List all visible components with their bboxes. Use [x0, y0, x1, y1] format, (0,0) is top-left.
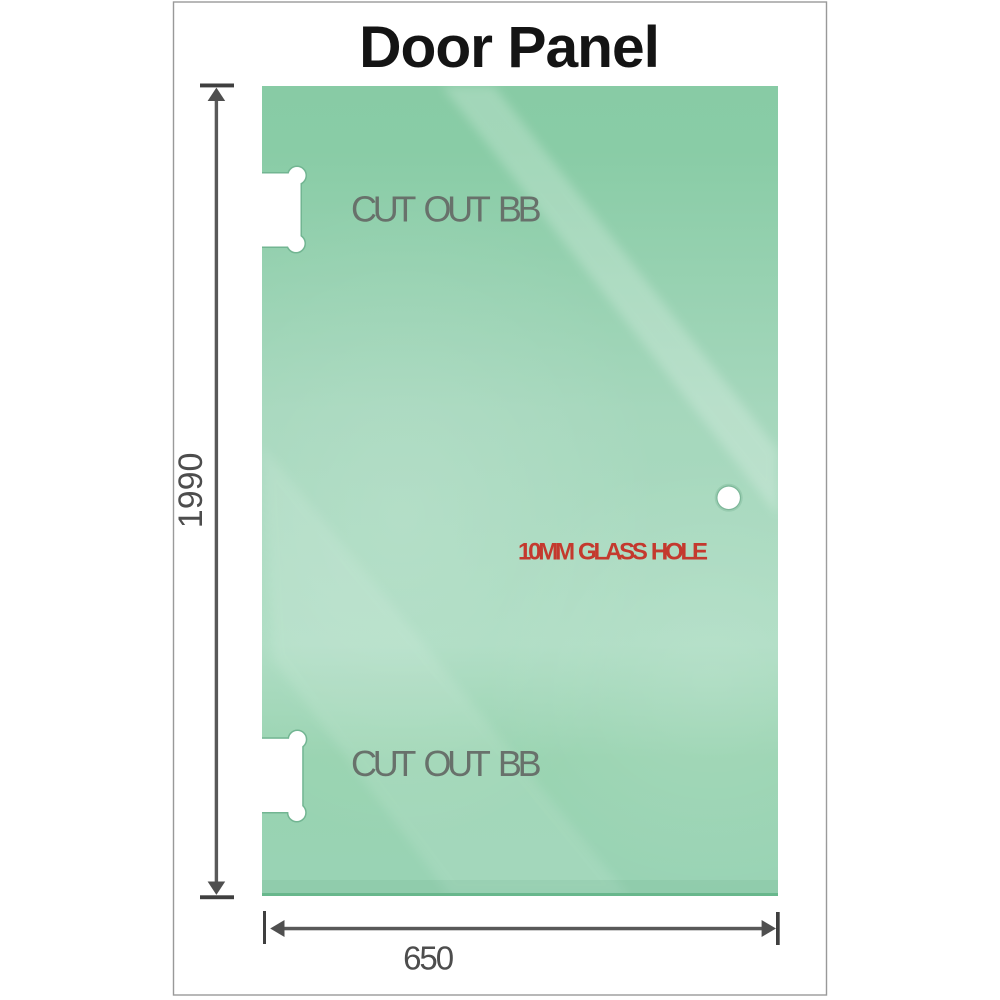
svg-text:Door Panel: Door Panel: [359, 15, 659, 80]
svg-text:10MM GLASS HOLE: 10MM GLASS HOLE: [518, 539, 708, 566]
svg-text:1990: 1990: [172, 453, 210, 529]
svg-text:CUT OUT BB: CUT OUT BB: [351, 743, 541, 784]
svg-text:650: 650: [403, 940, 454, 977]
svg-text:CUT OUT BB: CUT OUT BB: [351, 189, 541, 230]
